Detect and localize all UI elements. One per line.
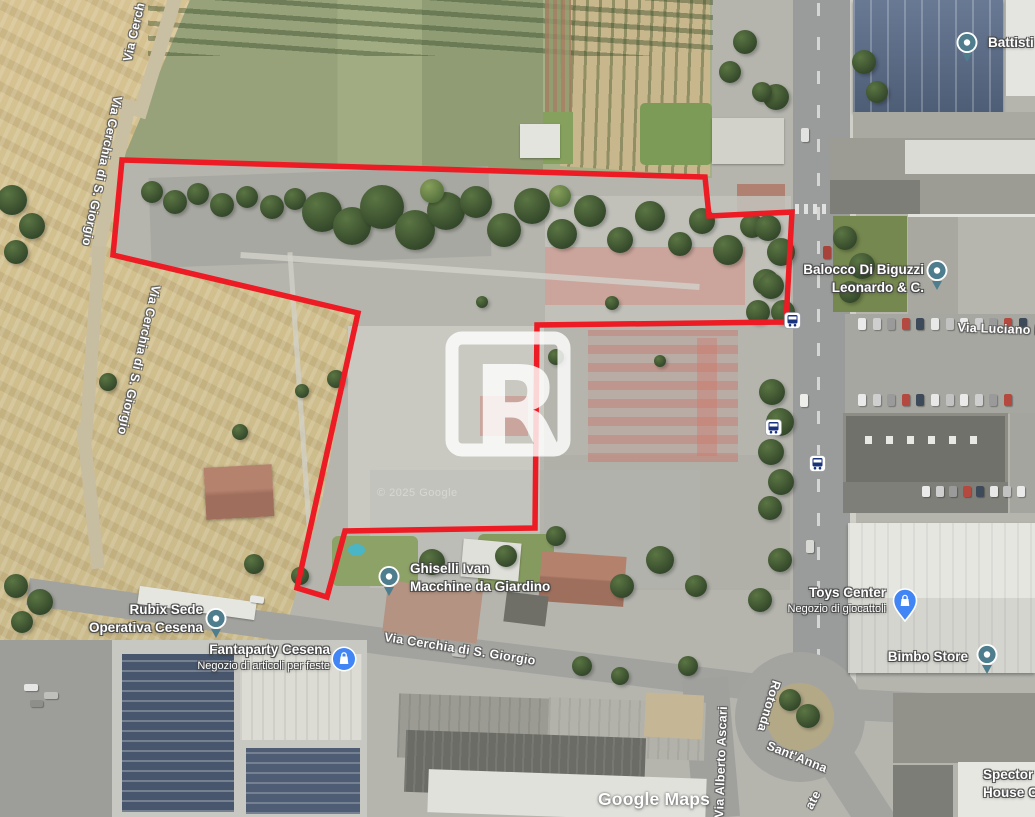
map-canvas[interactable]: R Google Maps © 2025 Google BattistiBalo…	[0, 0, 1035, 817]
poi-rubix-label[interactable]: Rubix SedeOperativa Cesena	[0, 601, 203, 636]
poi-label-line: Negozio di giocattoli	[606, 602, 886, 616]
poi-label-line: House Ce	[983, 784, 1035, 802]
poi-label-line: Ghiselli Ivan	[410, 560, 690, 578]
poi-label-line: Fantaparty Cesena	[50, 641, 330, 659]
poi-label-line: Negozio di articoli per feste	[50, 659, 330, 673]
poi-toys-center-label[interactable]: Toys CenterNegozio di giocattoli	[606, 584, 886, 616]
poi-label-line: Spector P	[983, 766, 1035, 784]
poi-bimbo-store-label[interactable]: Bimbo Store	[688, 648, 968, 666]
road-label: Via Luciano L	[957, 321, 1035, 338]
poi-rubix-pin[interactable]	[204, 607, 228, 644]
poi-toys-center-pin[interactable]	[892, 588, 918, 627]
poi-ghiselli-pin[interactable]	[377, 565, 401, 602]
poi-label-line: Rubix Sede	[0, 601, 203, 619]
poi-spector-label[interactable]: Spector PHouse Ce	[983, 766, 1035, 801]
poi-bimbo-store-pin[interactable]	[975, 643, 999, 680]
copyright-watermark: © 2025 Google	[377, 487, 458, 499]
poi-fantaparty-pin[interactable]	[331, 646, 357, 677]
bus-stop-icon[interactable]	[809, 455, 826, 477]
poi-label-line: Balocco Di Biguzzi	[644, 261, 924, 279]
poi-label-line: Battisti	[988, 34, 1035, 52]
bus-stop-icon[interactable]	[765, 419, 782, 441]
watermark-logo: R	[440, 328, 600, 488]
poi-label-line: Toys Center	[606, 584, 886, 602]
poi-balocco-pin[interactable]	[925, 259, 949, 296]
bus-stop-icon[interactable]	[784, 312, 801, 334]
google-maps-logo: Google Maps	[598, 789, 710, 810]
poi-label-line: Bimbo Store	[688, 648, 968, 666]
poi-battisti-label[interactable]: Battisti	[988, 34, 1035, 52]
poi-fantaparty-label[interactable]: Fantaparty CesenaNegozio di articoli per…	[50, 641, 330, 673]
poi-battisti-pin[interactable]	[955, 31, 979, 68]
poi-balocco-label[interactable]: Balocco Di BiguzziLeonardo & C.	[644, 261, 924, 296]
poi-label-line: Operativa Cesena	[0, 619, 203, 637]
poi-label-line: Leonardo & C.	[644, 279, 924, 297]
watermark-letter: R	[472, 340, 563, 478]
